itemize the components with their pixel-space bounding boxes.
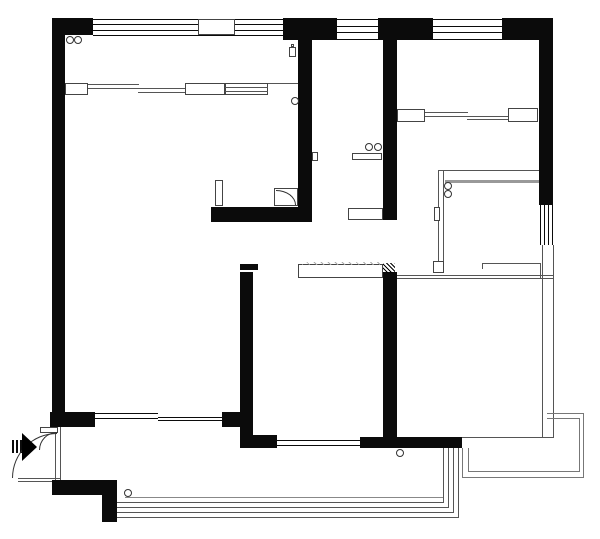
entry-door-frame-line — [60, 427, 61, 480]
counter-outline-line — [540, 263, 541, 279]
fixture-circle — [444, 190, 452, 198]
sliding-door-track — [138, 92, 186, 93]
counter-outline-line — [482, 263, 483, 269]
exterior-wall-bottom — [52, 480, 117, 495]
window-line — [93, 24, 283, 25]
right-light-wall-line-2 — [553, 245, 554, 438]
window-line — [275, 445, 360, 446]
platform-edge-line — [583, 413, 584, 478]
window-line — [433, 39, 502, 40]
window-line — [433, 26, 502, 27]
fixture-circle — [374, 143, 382, 151]
interior-wall-bottom-bar — [360, 437, 462, 448]
fixture-circle — [74, 36, 82, 44]
window-line — [93, 30, 283, 31]
window-bottom-left — [95, 413, 158, 419]
cabinet-row-line — [268, 83, 299, 84]
interior-wall-right-lower — [383, 272, 397, 448]
balcony-railing-line — [117, 502, 444, 503]
fixture-circle — [396, 449, 404, 457]
room2-top-partition-line — [397, 275, 554, 276]
sliding-door-track — [138, 88, 186, 89]
fixture-circle — [291, 97, 299, 105]
interior-wall-nook — [211, 207, 310, 222]
fixture-bottle-body — [289, 47, 296, 57]
hall-shelf — [352, 153, 382, 160]
platform-edge-line — [547, 418, 580, 419]
window-line — [552, 205, 553, 245]
platform-edge-line — [462, 448, 463, 478]
exterior-wall-right — [539, 18, 553, 205]
balcony-railing-line — [458, 448, 459, 518]
window-top-middle — [337, 19, 378, 40]
window-line — [95, 413, 158, 414]
beam-over-opening — [298, 264, 383, 278]
wardrobe-stripe-line — [225, 91, 268, 92]
wardrobe-end-box — [65, 83, 88, 95]
sliding-door-track — [467, 116, 509, 117]
beam-hatch-light — [302, 262, 380, 265]
exterior-wall-left — [52, 18, 65, 427]
entry-threshold-line — [18, 478, 60, 479]
window-line — [337, 19, 378, 20]
balcony-railing-line — [104, 517, 459, 518]
fixture-circle — [444, 182, 452, 190]
window-line — [548, 205, 549, 245]
fixture-circle — [124, 489, 132, 497]
window-bottom-left-2 — [158, 417, 222, 421]
window-line — [433, 19, 502, 20]
interior-wall-living-hall — [298, 28, 312, 222]
fixture-circle — [66, 36, 74, 44]
window-line — [544, 205, 545, 245]
kitchen-wall-side-tab — [434, 207, 440, 221]
counter-outline-line — [482, 263, 540, 264]
door-jamb-tab — [312, 152, 318, 161]
platform-edge-line — [579, 418, 580, 472]
window-top-right — [433, 19, 502, 40]
kitchen-wall-top-thick-line — [445, 180, 541, 183]
interior-wall-hall-bedroom — [383, 28, 397, 220]
window-bottom-middle — [275, 440, 360, 446]
window-right-wall — [540, 205, 553, 245]
balcony-railing-line — [112, 507, 449, 508]
platform-edge-line — [468, 448, 469, 472]
counter-outline-line — [482, 278, 554, 279]
balcony-railing-line — [453, 448, 454, 513]
window-top-left — [93, 19, 283, 36]
window-line — [337, 32, 378, 33]
room2-bottom-partition-line — [462, 437, 554, 438]
window-line — [275, 440, 360, 441]
fixture-circle — [365, 143, 373, 151]
balcony-railing-line — [448, 448, 449, 508]
kitchen-wall-top-line — [438, 170, 541, 171]
hall-shelf — [348, 208, 383, 220]
sliding-door-track — [88, 84, 139, 85]
window-line — [337, 26, 378, 27]
window-line — [337, 39, 378, 40]
entry-marker-bar — [12, 440, 14, 453]
exterior-wall-bottom-step — [102, 495, 117, 522]
platform-edge-line — [468, 471, 580, 472]
balcony-inner-line — [125, 497, 443, 498]
entry-arrow — [22, 433, 37, 461]
kitchen-wall-end-tab — [433, 261, 444, 273]
sliding-door-track — [88, 88, 139, 89]
window-line — [433, 32, 502, 33]
balcony-railing-line — [108, 512, 454, 513]
platform-edge-line — [547, 413, 584, 414]
wardrobe-end-box — [397, 109, 425, 122]
balcony-railing-line — [443, 448, 444, 503]
interior-wall-cap — [240, 264, 258, 270]
window-line — [93, 19, 283, 20]
entry-marker-bar — [16, 440, 18, 453]
interior-wall-foot — [253, 435, 277, 448]
floorplan — [0, 0, 600, 539]
wardrobe-end-box — [508, 108, 538, 122]
wardrobe-stripe-line — [225, 87, 268, 88]
window-line — [158, 417, 222, 418]
wardrobe-striped-box — [225, 83, 268, 95]
window-pier-box — [198, 19, 235, 35]
window-line — [93, 35, 283, 36]
window-pier — [222, 412, 248, 427]
wardrobe-end-box — [185, 83, 225, 95]
window-line — [540, 205, 541, 245]
sliding-door-track — [467, 119, 509, 120]
fixture-bottle-neck — [291, 44, 294, 47]
window-line — [158, 420, 222, 421]
exterior-wall-bottom-left — [50, 412, 95, 427]
beam-hatch — [383, 263, 395, 273]
sliding-door-track — [425, 112, 468, 113]
window-line — [95, 418, 158, 419]
platform-edge-line — [462, 477, 584, 478]
right-light-wall-line — [542, 245, 543, 438]
sliding-door-track — [425, 116, 468, 117]
nook-pillar — [215, 180, 223, 206]
